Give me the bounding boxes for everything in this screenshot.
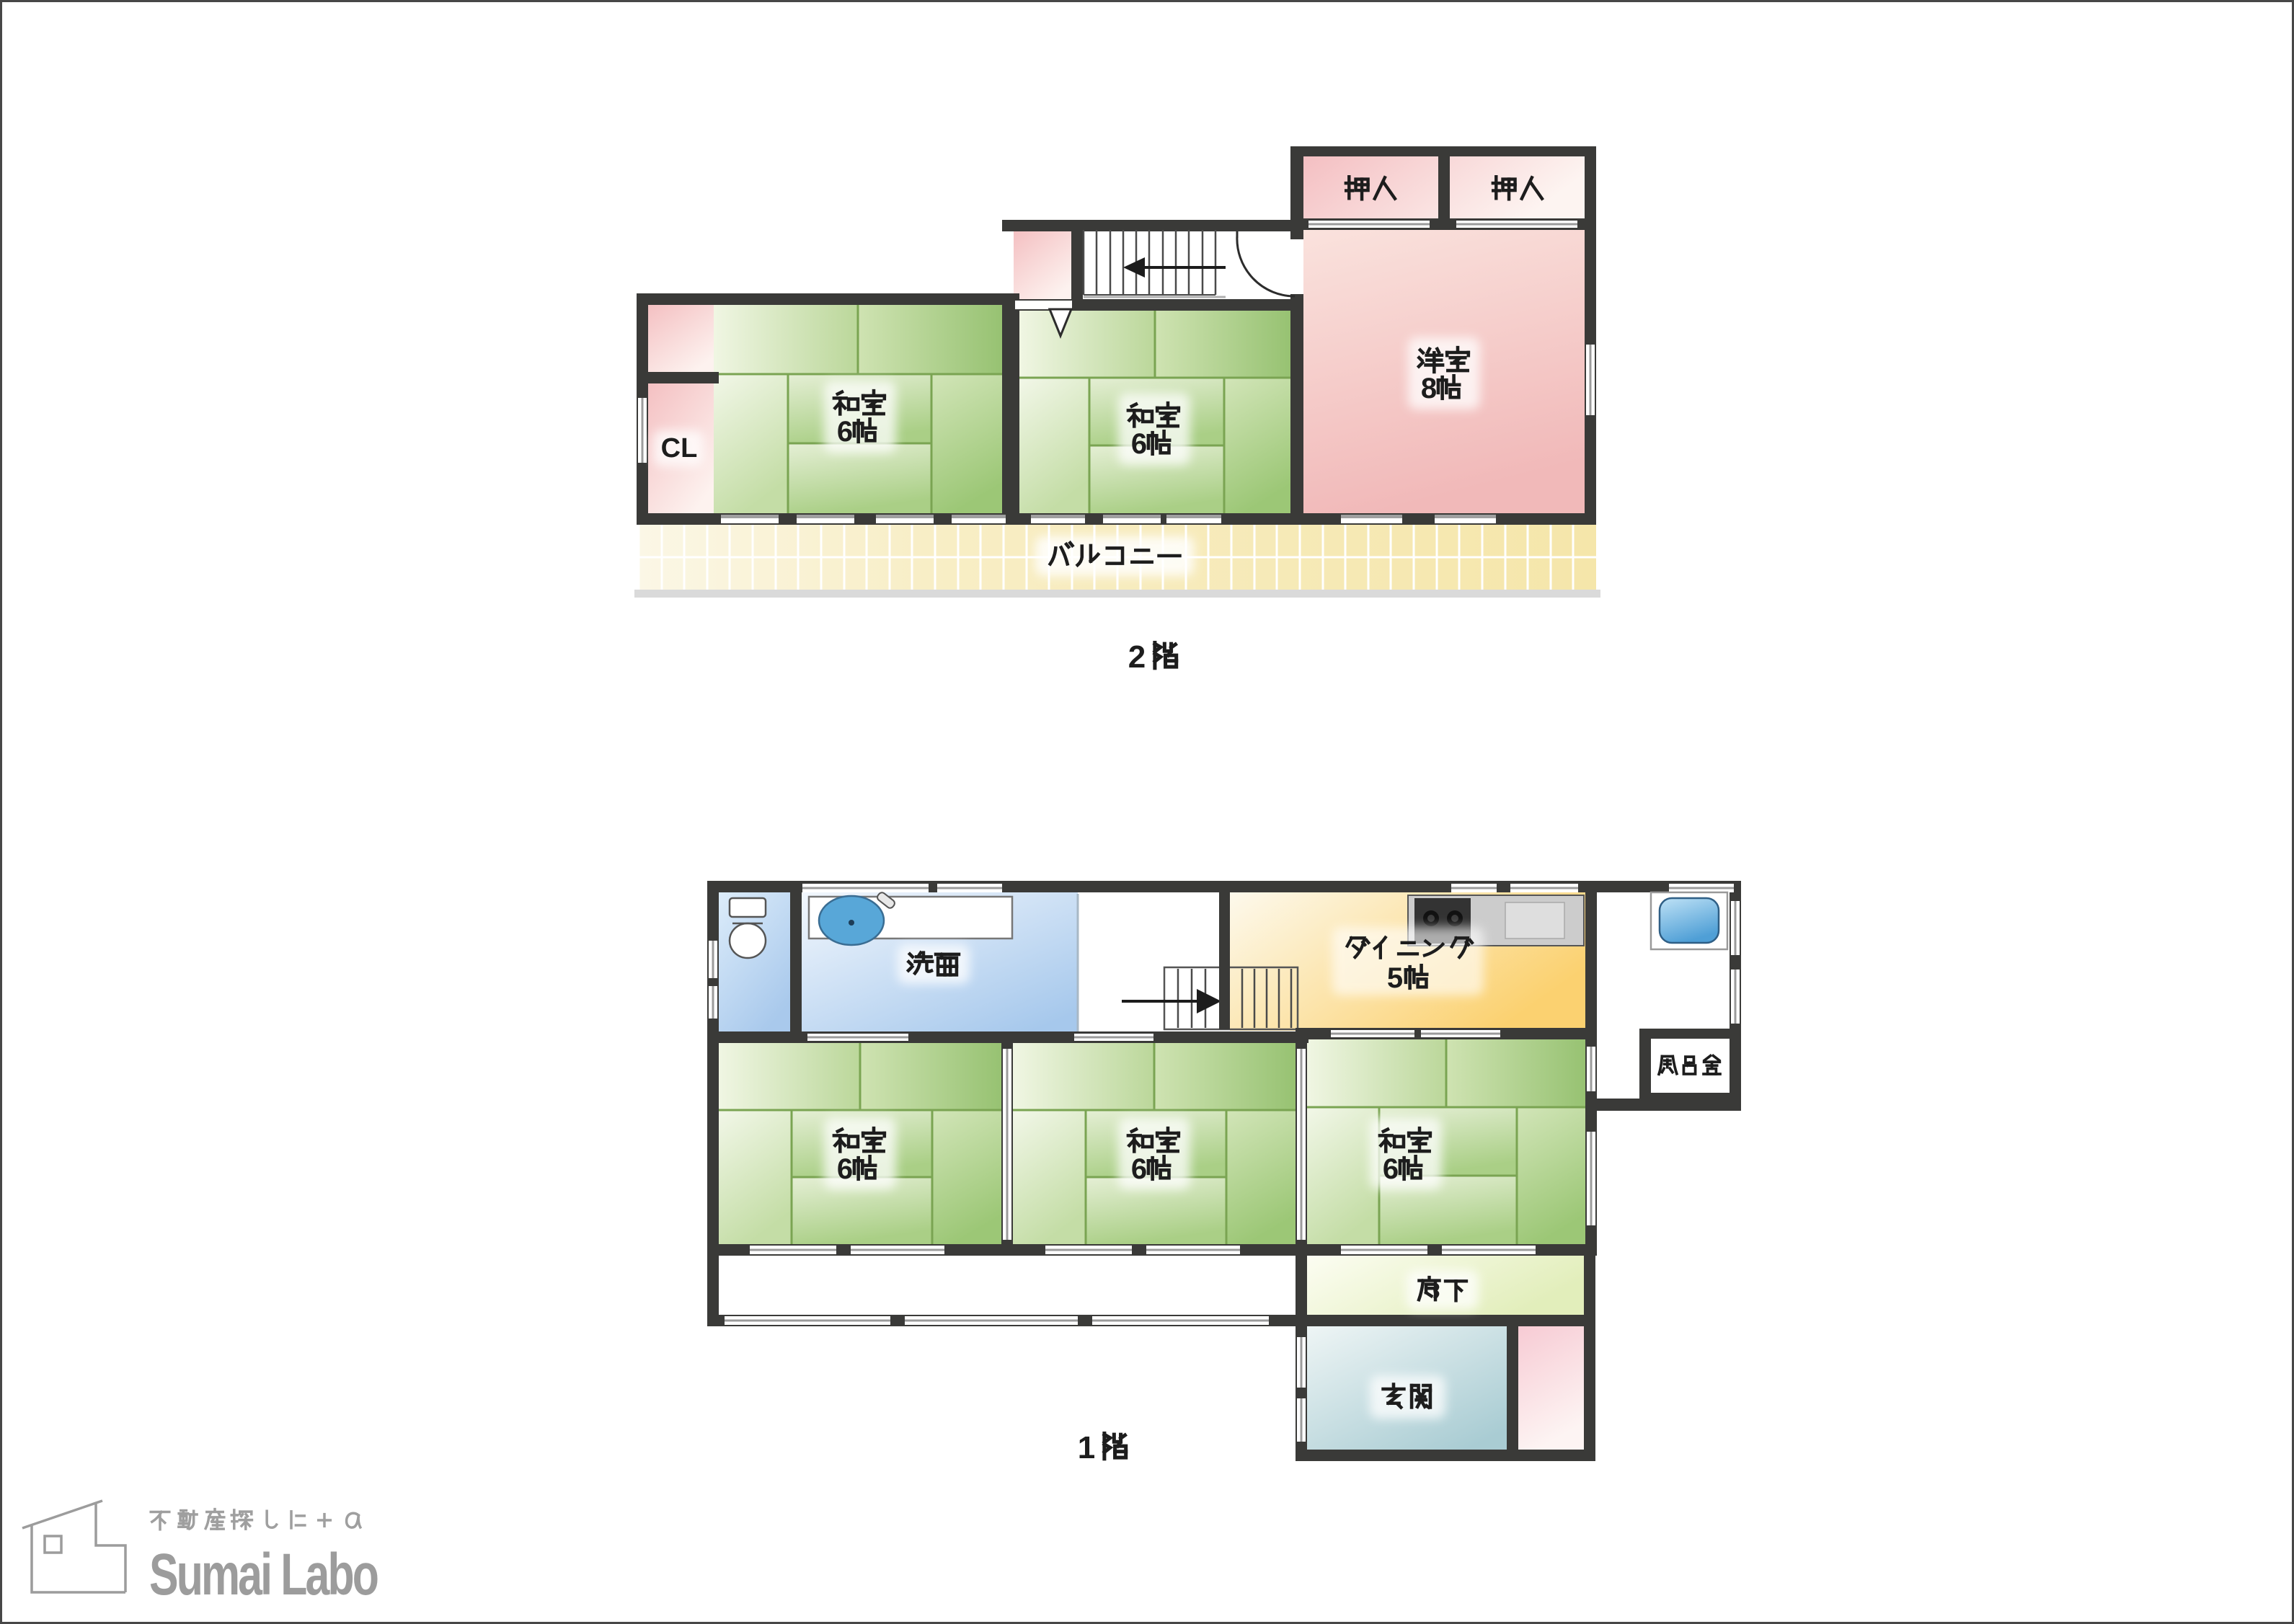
svg-text:5: 5 [1387, 962, 1403, 994]
svg-text:Sumai Labo: Sumai Labo [149, 1542, 378, 1607]
svg-text:2: 2 [1128, 639, 1146, 675]
svg-text:1: 1 [1078, 1430, 1095, 1465]
svg-text:6: 6 [1383, 1153, 1399, 1185]
svg-text:6: 6 [1131, 428, 1147, 460]
svg-text:6: 6 [1131, 1153, 1147, 1185]
svg-text:CL: CL [661, 433, 698, 463]
svg-text:6: 6 [837, 1153, 853, 1185]
svg-text:6: 6 [837, 416, 853, 448]
svg-text:8: 8 [1421, 373, 1437, 404]
